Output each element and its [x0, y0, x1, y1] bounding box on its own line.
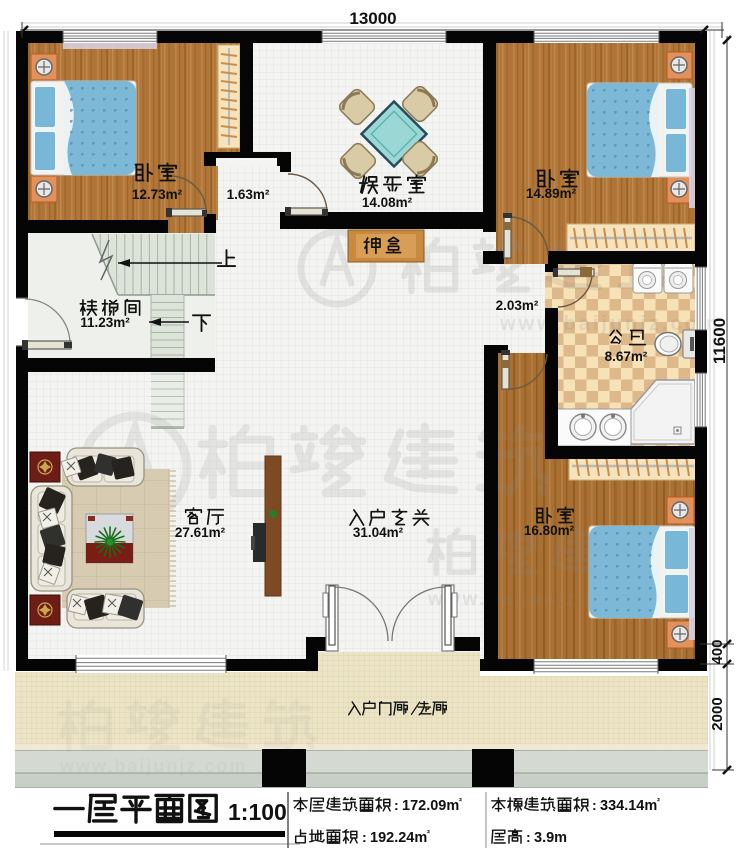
svg-text:14.08m²: 14.08m² — [362, 195, 413, 210]
svg-text:2000: 2000 — [709, 697, 726, 730]
svg-text:²: ² — [427, 828, 430, 838]
svg-text:8.67m²: 8.67m² — [605, 349, 648, 364]
svg-text::: : — [592, 797, 597, 813]
svg-text:27.61m²: 27.61m² — [175, 525, 226, 540]
svg-text:192.24m: 192.24m — [370, 830, 427, 846]
svg-text::: : — [362, 829, 367, 845]
svg-text:14.89m²: 14.89m² — [526, 186, 577, 201]
svg-text:3.9m: 3.9m — [534, 830, 567, 846]
svg-text::: : — [394, 797, 399, 813]
svg-text:11.23m²: 11.23m² — [80, 315, 130, 330]
svg-text:13000: 13000 — [349, 9, 396, 28]
svg-text:172.09m: 172.09m — [402, 798, 459, 814]
svg-text:400: 400 — [709, 639, 726, 664]
svg-text:334.14m: 334.14m — [600, 798, 657, 814]
svg-text:16.80m²: 16.80m² — [524, 523, 575, 538]
svg-text:²: ² — [657, 796, 660, 806]
svg-text:11600: 11600 — [710, 318, 729, 364]
svg-text:www.baijunjz.com: www.baijunjz.com — [59, 756, 247, 776]
svg-text::: : — [526, 829, 531, 845]
svg-text:2.03m²: 2.03m² — [496, 298, 539, 313]
svg-text:1:100: 1:100 — [228, 799, 287, 825]
svg-text:31.04m²: 31.04m² — [353, 525, 404, 540]
svg-text:1.63m²: 1.63m² — [227, 187, 270, 202]
svg-text:12.73m²: 12.73m² — [132, 187, 183, 202]
svg-text:²: ² — [459, 796, 462, 806]
